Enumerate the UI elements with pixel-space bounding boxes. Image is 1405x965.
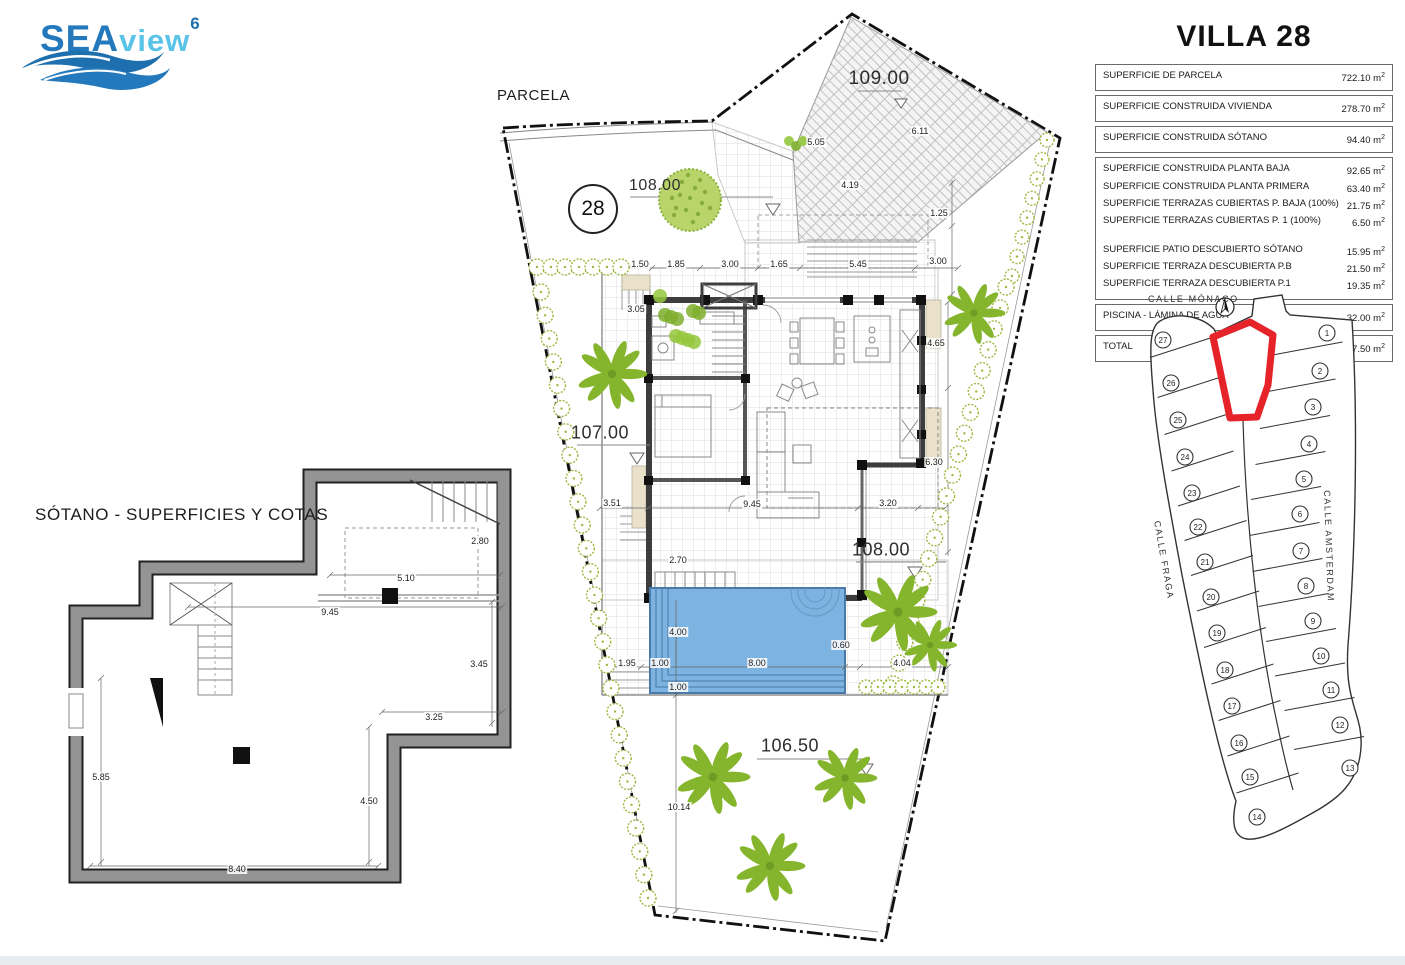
shrub-icon — [574, 517, 590, 533]
level-label: 109.00 — [848, 68, 909, 90]
svg-text:1: 1 — [1325, 329, 1330, 338]
dim-label: 4.50 — [359, 796, 379, 806]
shrub-icon — [599, 657, 615, 673]
map-plot-number: 5 — [1296, 471, 1312, 487]
map-plot-number: 19 — [1209, 625, 1225, 641]
footer-strip — [0, 956, 1405, 965]
dim-label: 3.51 — [602, 498, 622, 508]
surface-value: 278.70 m2 — [1341, 100, 1385, 117]
shrub-icon — [628, 820, 644, 836]
svg-text:27: 27 — [1159, 336, 1168, 345]
map-plot-number: 26 — [1163, 375, 1179, 391]
svg-text:7: 7 — [1299, 547, 1304, 556]
map-plot-number: 18 — [1217, 662, 1233, 678]
svg-text:25: 25 — [1174, 416, 1183, 425]
map-plot-number: 3 — [1305, 399, 1321, 415]
svg-text:3: 3 — [1311, 403, 1316, 412]
shrub-icon — [1035, 152, 1049, 166]
svg-text:14: 14 — [1253, 813, 1262, 822]
surface-label: SUPERFICIE TERRAZAS CUBIERTAS P. BAJA (1… — [1103, 197, 1339, 214]
dim-label: 3.05 — [626, 304, 646, 314]
dim-label: 3.00 — [720, 259, 740, 269]
svg-text:24: 24 — [1181, 453, 1190, 462]
dim-label: 10.14 — [667, 802, 692, 812]
map-plot-number: 4 — [1301, 436, 1317, 452]
shrub-icon — [956, 425, 972, 441]
level-label: 108.00 — [852, 540, 910, 561]
svg-text:18: 18 — [1221, 666, 1230, 675]
shrub-icon — [1010, 250, 1024, 264]
map-plot-number: 2 — [1312, 363, 1328, 379]
surface-value: 94.40 m2 — [1347, 131, 1385, 148]
shrub-icon — [570, 494, 586, 510]
plan-sheet: { "logo": {"sea": "SEA", "view": "view",… — [0, 0, 1405, 965]
surface-value: 92.65 m2 — [1347, 162, 1385, 179]
dim-label: 5.10 — [396, 573, 416, 583]
shrub-icon — [1030, 172, 1044, 186]
shrub-icon — [545, 354, 561, 370]
surface-value: 21.75 m2 — [1347, 197, 1385, 214]
svg-text:11: 11 — [1327, 686, 1336, 695]
surface-label: SUPERFICIE CONSTRUIDA VIVIENDA — [1103, 100, 1272, 117]
shrub-icon — [603, 680, 619, 696]
svg-text:2: 2 — [1318, 367, 1323, 376]
map-plot-number: 16 — [1231, 735, 1247, 751]
shrub-icon — [595, 634, 611, 650]
dim-label: 1.50 — [630, 259, 650, 269]
shrub-icon — [915, 572, 931, 588]
shrub-icon — [607, 704, 623, 720]
svg-text:23: 23 — [1188, 489, 1197, 498]
shrub-icon — [962, 404, 978, 420]
dim-label: 4.00 — [668, 627, 688, 637]
shrub-icon — [541, 331, 557, 347]
surface-label: SUPERFICIE DE PARCELA — [1103, 69, 1222, 86]
map-plot-number: 25 — [1170, 412, 1186, 428]
svg-text:17: 17 — [1228, 702, 1237, 711]
shrub-icon — [615, 750, 631, 766]
shrub-icon — [1025, 191, 1039, 205]
dim-label: 3.45 — [469, 659, 489, 669]
svg-text:9: 9 — [1311, 617, 1316, 626]
map-plot-number: 12 — [1332, 717, 1348, 733]
map-plot-number: 8 — [1298, 578, 1314, 594]
map-plot-number: 9 — [1305, 613, 1321, 629]
dim-label: 6.11 — [911, 126, 930, 136]
dim-label: 4.04 — [892, 658, 912, 668]
surface-table-group: SUPERFICIE CONSTRUIDA SÓTANO94.40 m2 — [1095, 126, 1393, 153]
level-label: 106.50 — [761, 736, 819, 757]
surface-value: 21.50 m2 — [1347, 260, 1385, 277]
dim-label: 3.25 — [424, 712, 444, 722]
shrub-icon — [998, 279, 1014, 295]
surface-label: TOTAL — [1103, 340, 1133, 357]
surface-label: SUPERFICIE CONSTRUIDA PLANTA PRIMERA — [1103, 180, 1309, 197]
dim-label: 1.25 — [929, 208, 949, 218]
dim-label: 0.60 — [831, 640, 851, 650]
surface-label: SUPERFICIE PATIO DESCUBIERTO SÓTANO — [1103, 243, 1303, 260]
map-plot-number: 7 — [1293, 543, 1309, 559]
dim-label: 1.85 — [666, 259, 686, 269]
shrub-icon — [582, 564, 598, 580]
shrub-icon — [549, 377, 565, 393]
map-plot-number: 14 — [1249, 809, 1265, 825]
shrub-icon — [933, 509, 949, 525]
plot-number-badge: 28 — [568, 184, 618, 234]
dim-label: 6.30 — [924, 457, 944, 467]
shrub-icon — [980, 342, 996, 358]
shrub-icon — [927, 530, 943, 546]
svg-text:16: 16 — [1235, 739, 1244, 748]
shrub-icon — [921, 551, 937, 567]
dim-label: 5.85 — [91, 772, 111, 782]
shrub-icon — [562, 447, 578, 463]
shrub-icon — [619, 773, 635, 789]
shrub-icon — [968, 383, 984, 399]
dim-label: 1.65 — [769, 259, 789, 269]
dim-label: 1.00 — [668, 682, 688, 692]
dim-label: 2.70 — [668, 555, 688, 565]
dim-label: 9.45 — [742, 499, 762, 509]
map-plot-number: 10 — [1313, 648, 1329, 664]
surface-value: 722.10 m2 — [1341, 69, 1385, 86]
shrub-icon — [636, 867, 652, 883]
map-plot-number: 15 — [1242, 769, 1258, 785]
svg-text:6: 6 — [1298, 510, 1303, 519]
shrub-icon — [611, 727, 627, 743]
shrub-icon — [950, 446, 966, 462]
shrub-icon — [632, 843, 648, 859]
map-plot-number: 24 — [1177, 449, 1193, 465]
shrub-icon — [613, 259, 629, 275]
map-plot-number: 6 — [1292, 506, 1308, 522]
shrub-icon — [566, 470, 582, 486]
surface-table-group: SUPERFICIE DE PARCELA722.10 m2 — [1095, 64, 1393, 91]
map-plot-number: 1 — [1319, 325, 1335, 341]
svg-text:4: 4 — [1307, 440, 1312, 449]
dim-label: 9.45 — [320, 607, 340, 617]
basement-plan — [66, 476, 505, 876]
level-label: 107.00 — [571, 423, 629, 444]
map-plot-number: 27 — [1155, 332, 1171, 348]
parcela-label: PARCELA — [497, 87, 570, 104]
svg-text:12: 12 — [1336, 721, 1345, 730]
dim-label: 1.00 — [650, 658, 670, 668]
map-plot-number: 20 — [1203, 589, 1219, 605]
dim-label: 8.00 — [747, 658, 767, 668]
surface-value: 6.50 m2 — [1352, 214, 1385, 231]
surface-table-group: SUPERFICIE CONSTRUIDA PLANTA BAJA92.65 m… — [1095, 157, 1393, 299]
shrub-icon — [1015, 230, 1029, 244]
shrub-icon — [591, 610, 607, 626]
dim-label: 2.80 — [470, 536, 490, 546]
surface-label: SUPERFICIE CONSTRUIDA PLANTA BAJA — [1103, 162, 1290, 179]
palm-tree-icon — [813, 746, 877, 810]
svg-text:5: 5 — [1302, 475, 1307, 484]
shrub-icon — [587, 587, 603, 603]
surface-value: 63.40 m2 — [1347, 180, 1385, 197]
shrub-icon — [939, 488, 955, 504]
dim-label: 5.05 — [806, 137, 826, 147]
surface-label: SUPERFICIE TERRAZA DESCUBIERTA P.B — [1103, 260, 1292, 277]
shrub-icon — [931, 680, 945, 694]
shrub-icon — [1020, 211, 1034, 225]
shrub-icon — [533, 284, 549, 300]
level-label: 108.00 — [629, 177, 681, 195]
dim-label: 3.00 — [928, 256, 948, 266]
shrub-icon — [1040, 133, 1054, 147]
shrub-icon — [554, 401, 570, 417]
map-plot-number: 23 — [1184, 485, 1200, 501]
svg-text:20: 20 — [1207, 593, 1216, 602]
shrub-icon — [974, 363, 990, 379]
map-plot-number: 21 — [1197, 554, 1213, 570]
map-plot-number: 13 — [1342, 760, 1358, 776]
shrub-icon — [537, 307, 553, 323]
dim-label: 4.65 — [926, 338, 946, 348]
dim-label: 8.40 — [227, 864, 247, 874]
shrub-icon — [640, 890, 656, 906]
villa-title: VILLA 28 — [1095, 20, 1393, 54]
palm-tree-icon — [735, 831, 805, 901]
svg-text:10: 10 — [1317, 652, 1326, 661]
street-label-monaco: CALLE MÓNACO — [1148, 294, 1239, 304]
map-plot-number: 11 — [1323, 682, 1339, 698]
dim-label: 1.95 — [617, 658, 637, 668]
svg-text:15: 15 — [1246, 773, 1255, 782]
dim-label: 4.19 — [840, 180, 860, 190]
svg-text:13: 13 — [1346, 764, 1355, 773]
surface-label: SUPERFICIE CONSTRUIDA SÓTANO — [1103, 131, 1267, 148]
shrub-icon — [578, 540, 594, 556]
svg-text:19: 19 — [1213, 629, 1222, 638]
svg-text:8: 8 — [1304, 582, 1309, 591]
svg-text:21: 21 — [1201, 558, 1210, 567]
shrub-icon — [944, 467, 960, 483]
map-plot-number: 17 — [1224, 698, 1240, 714]
surface-table-group: SUPERFICIE CONSTRUIDA VIVIENDA278.70 m2 — [1095, 95, 1393, 122]
shrub-icon — [624, 797, 640, 813]
sotano-title: SÓTANO - SUPERFICIES Y COTAS — [35, 505, 328, 525]
surface-label: SUPERFICIE TERRAZAS CUBIERTAS P. 1 (100%… — [1103, 214, 1321, 231]
map-plot-number: 22 — [1190, 519, 1206, 535]
svg-text:26: 26 — [1167, 379, 1176, 388]
svg-text:22: 22 — [1194, 523, 1203, 532]
dim-label: 3.20 — [878, 498, 898, 508]
dim-label: 5.45 — [848, 259, 868, 269]
surface-value: 15.95 m2 — [1347, 243, 1385, 260]
